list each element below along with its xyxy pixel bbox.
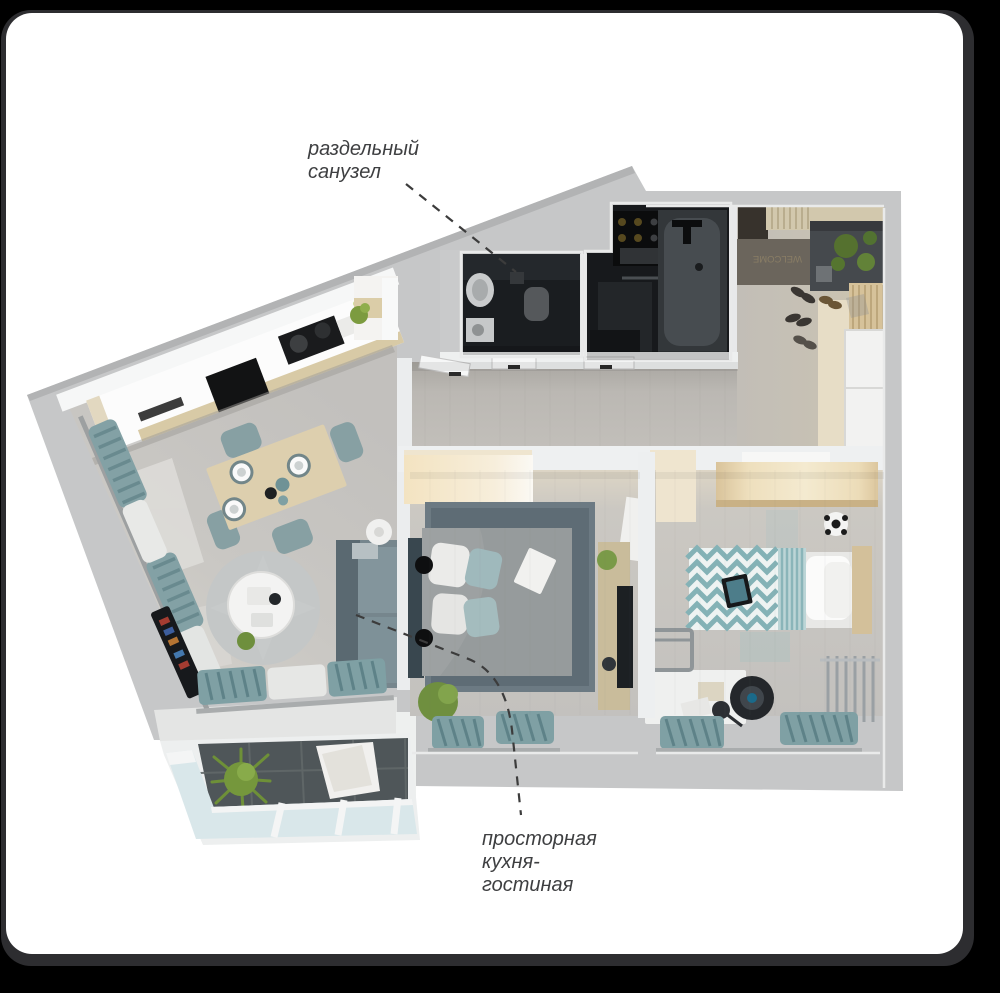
svg-text:раздельный: раздельный — [307, 138, 419, 160]
svg-text:санузел: санузел — [308, 161, 381, 183]
svg-text:кухня-: кухня- — [482, 851, 540, 873]
svg-text:гостиная: гостиная — [482, 874, 574, 896]
svg-text:просторная: просторная — [482, 828, 597, 850]
svg-text:WELCOME: WELCOME — [753, 253, 802, 264]
